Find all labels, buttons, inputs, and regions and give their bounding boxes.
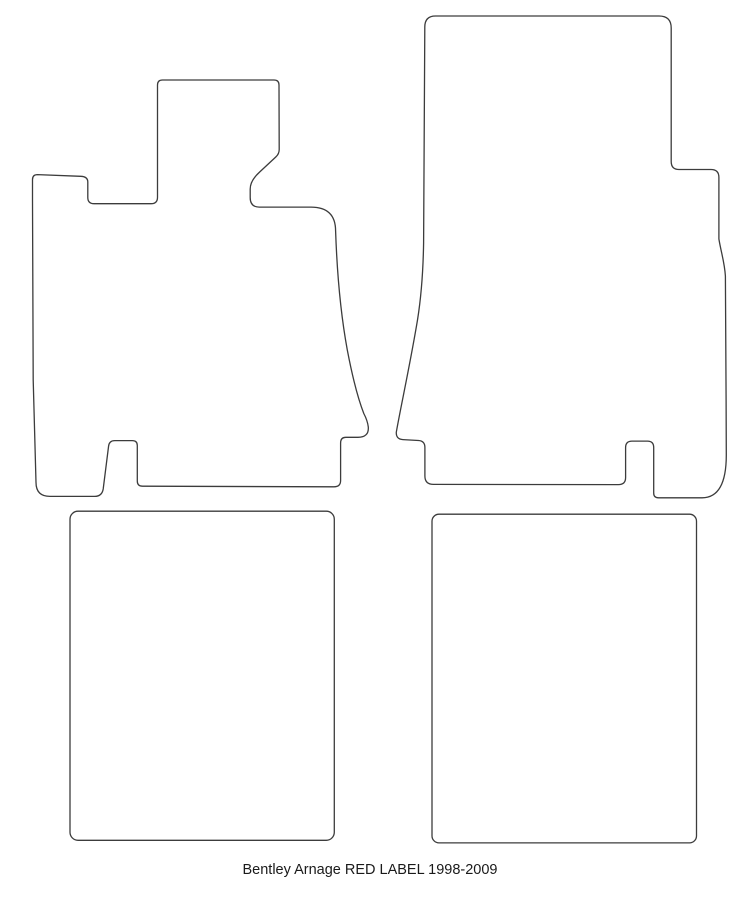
- svg-text:Bentley Arnage RED LABEL 1998-: Bentley Arnage RED LABEL 1998-2009: [243, 862, 498, 878]
